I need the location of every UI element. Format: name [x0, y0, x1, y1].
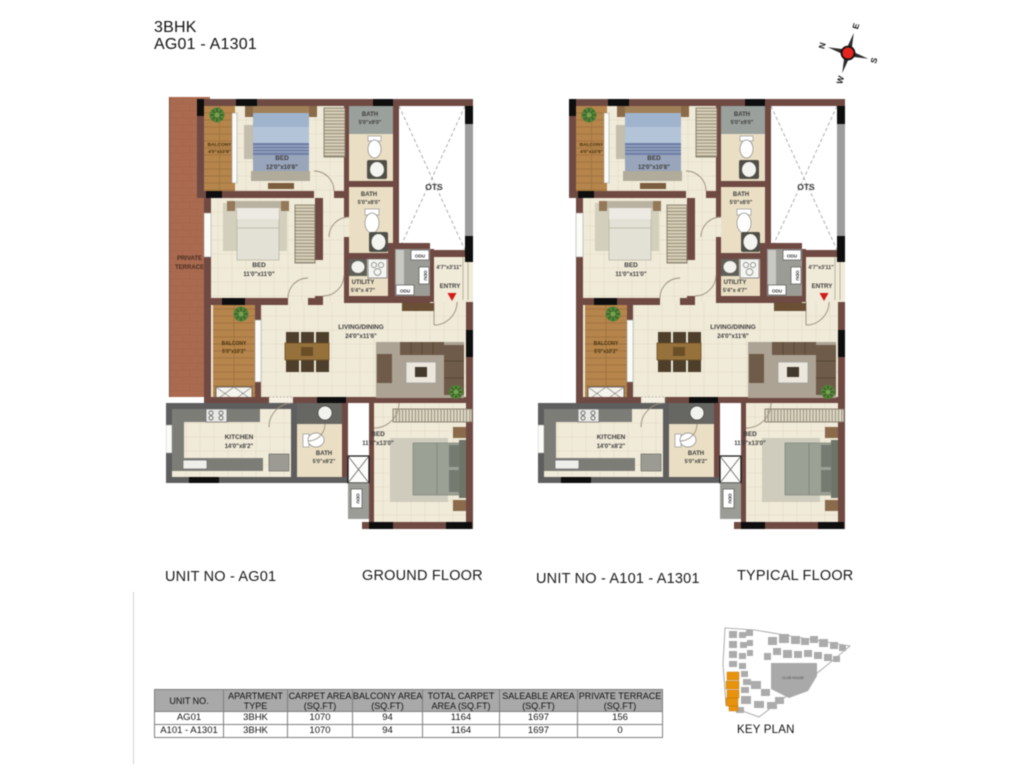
svg-text:24'0"x11'6": 24'0"x11'6" [345, 334, 377, 340]
svg-text:BED: BED [275, 155, 289, 162]
svg-text:ODU: ODU [772, 289, 783, 294]
svg-text:5'0"x10'2": 5'0"x10'2" [222, 349, 246, 355]
svg-text:4'0"x10'8": 4'0"x10'8" [208, 149, 231, 155]
svg-text:E: E [850, 22, 861, 31]
svg-text:11'0"x11'0": 11'0"x11'0" [243, 272, 274, 278]
svg-text:BATH: BATH [361, 192, 377, 198]
svg-text:W: W [834, 74, 846, 85]
svg-text:5'0"x8'0": 5'0"x8'0" [730, 200, 753, 206]
svg-text:5'0"x9'0": 5'0"x9'0" [731, 120, 754, 126]
svg-text:5'4"x 4'7": 5'4"x 4'7" [723, 288, 748, 294]
svg-text:LIVING/DINING: LIVING/DINING [338, 324, 383, 331]
svg-text:BED: BED [743, 431, 757, 438]
svg-text:LIVING/DINING: LIVING/DINING [710, 324, 755, 331]
svg-text:5'0"x10'2": 5'0"x10'2" [594, 349, 618, 355]
svg-text:4'7"x3'11": 4'7"x3'11" [436, 265, 462, 271]
svg-text:BED: BED [647, 155, 661, 162]
svg-text:5'4"x 4'7": 5'4"x 4'7" [351, 288, 376, 294]
svg-text:12'0"x10'8": 12'0"x10'8" [638, 165, 670, 171]
svg-text:ODU: ODU [787, 254, 798, 259]
svg-text:4'7"x3'11": 4'7"x3'11" [808, 265, 834, 271]
svg-text:11'0"x13'0": 11'0"x13'0" [362, 441, 394, 447]
svg-text:OTS: OTS [797, 182, 815, 192]
svg-text:BED: BED [252, 262, 266, 269]
svg-text:BALCONY: BALCONY [222, 341, 247, 347]
svg-text:BALCONY: BALCONY [208, 142, 233, 148]
svg-text:BED: BED [371, 431, 385, 438]
svg-text:11'0"x13'0": 11'0"x13'0" [734, 441, 766, 447]
svg-text:PRIVATE: PRIVATE [177, 256, 202, 262]
svg-text:UTILITY: UTILITY [352, 280, 375, 286]
svg-text:12'0"x10'8": 12'0"x10'8" [266, 165, 298, 171]
svg-text:UTILITY: UTILITY [724, 280, 747, 286]
svg-text:BATH: BATH [688, 451, 704, 457]
svg-text:TERRACE: TERRACE [175, 265, 204, 271]
svg-text:11'0"x11'0": 11'0"x11'0" [615, 272, 646, 278]
svg-text:N: N [816, 41, 827, 50]
svg-text:ODU: ODU [415, 254, 426, 259]
svg-text:ODU: ODU [728, 493, 733, 504]
svg-text:BALCONY: BALCONY [580, 142, 605, 148]
svg-text:5'0"x8'2": 5'0"x8'2" [685, 459, 708, 465]
svg-text:5'0"x8'2": 5'0"x8'2" [313, 459, 336, 465]
svg-text:14'0"x8'2": 14'0"x8'2" [225, 444, 254, 450]
svg-text:BATH: BATH [734, 112, 750, 118]
svg-text:KITCHEN: KITCHEN [597, 434, 626, 441]
svg-text:BALCONY: BALCONY [594, 341, 619, 347]
svg-text:ENTRY: ENTRY [812, 283, 834, 290]
svg-text:CLUB HOUSE: CLUB HOUSE [782, 676, 805, 680]
svg-text:BATH: BATH [362, 112, 378, 118]
svg-text:14'0"x8'2": 14'0"x8'2" [597, 444, 626, 450]
svg-text:ENTRY: ENTRY [440, 283, 462, 290]
svg-text:5'0"x9'0": 5'0"x9'0" [359, 120, 382, 126]
svg-text:5'0"x8'0": 5'0"x8'0" [358, 200, 381, 206]
svg-text:ODU: ODU [795, 270, 800, 281]
svg-text:ODU: ODU [423, 270, 428, 281]
svg-text:BATH: BATH [316, 451, 332, 457]
svg-text:BATH: BATH [733, 192, 749, 198]
svg-text:S: S [868, 56, 879, 65]
svg-text:ODU: ODU [356, 493, 361, 504]
svg-text:ODU: ODU [400, 289, 411, 294]
svg-text:4'0"x10'8": 4'0"x10'8" [580, 149, 603, 155]
svg-text:KITCHEN: KITCHEN [225, 434, 254, 441]
svg-text:24'0"x11'6": 24'0"x11'6" [717, 334, 749, 340]
svg-text:BED: BED [624, 262, 638, 269]
svg-text:OTS: OTS [425, 182, 443, 192]
